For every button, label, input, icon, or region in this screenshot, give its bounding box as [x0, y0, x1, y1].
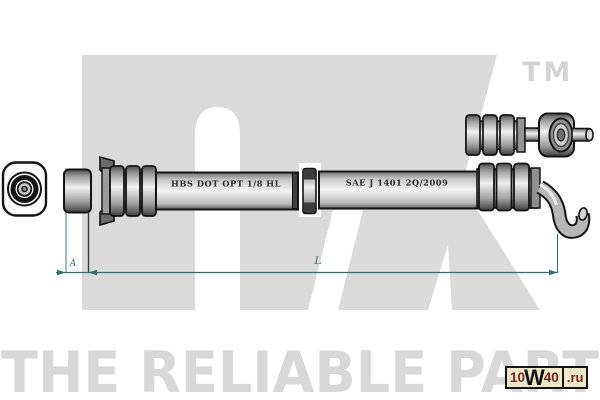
crimp-sleeve-right	[477, 164, 540, 211]
badge-domain: .ru	[564, 368, 587, 387]
hose-marking-1-text: HBS DOT OPT 1/8 HL	[171, 179, 281, 189]
flare-nut	[539, 114, 574, 157]
dim-label-l: L	[314, 255, 322, 267]
badge-text-10: 10	[510, 368, 525, 387]
flare-nut-fitting-detail	[466, 114, 593, 157]
hose-segment-2: SAE J 1401 2Q/2009	[319, 172, 479, 209]
product-image: TM THE RELIABLE PART	[0, 0, 600, 400]
fitting-end-view	[3, 163, 46, 216]
brake-hose-figure: TM THE RELIABLE PART	[0, 0, 600, 400]
crimp-sleeve-left	[110, 166, 158, 216]
badge-text-w: W	[524, 368, 545, 387]
left-end-cap	[64, 170, 91, 213]
badge-text-40: 40	[544, 368, 559, 387]
arrowhead-a-left	[57, 270, 66, 275]
hose-segment-1: HBS DOT OPT 1/8 HL	[156, 173, 298, 210]
trademark-symbol: TM	[522, 57, 573, 88]
dim-label-a: A	[69, 259, 77, 269]
hose-marking-2-text: SAE J 1401 2Q/2009	[346, 178, 449, 188]
site-watermark-badge: 10 W 40 .ru	[505, 366, 588, 389]
nk-logo-watermark: TM THE RELIABLE PART	[1, 55, 599, 400]
bent-tube-end	[540, 185, 588, 232]
arrowhead-l-right	[549, 270, 558, 275]
pass-through-grommet	[299, 163, 321, 217]
